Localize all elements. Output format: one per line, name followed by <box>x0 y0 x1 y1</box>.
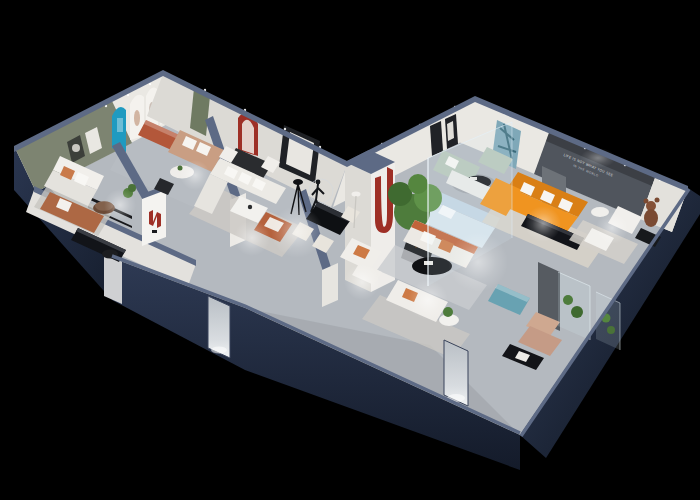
spot-pool-5 <box>234 220 270 256</box>
spot-pool-2 <box>448 232 508 292</box>
spot-pool-4 <box>525 206 561 242</box>
poster-circle-art <box>72 144 80 152</box>
spot-pool-8 <box>344 264 380 300</box>
double-frame-matte <box>447 121 454 141</box>
bear-body <box>644 209 658 227</box>
spot-pool-7 <box>596 212 628 244</box>
case-plant-2 <box>571 306 583 318</box>
logo-mark <box>152 230 157 233</box>
case-cactus-2 <box>607 326 615 334</box>
blue-arch-text-hint <box>117 118 123 132</box>
spot-pool-3 <box>408 280 448 320</box>
table-decor <box>248 205 252 209</box>
isometric-floorplan: LIFE IS NOT WHAT YOU SEE IN THE WORLD <box>0 0 700 500</box>
tree-foliage-4 <box>408 174 428 194</box>
case-plant-1 <box>563 295 573 305</box>
spot-pool-6 <box>180 160 210 190</box>
spot-pool-9 <box>104 189 136 221</box>
double-frame-art-1 <box>430 121 443 156</box>
red-arch-inner <box>242 120 254 154</box>
partition-3-endcap <box>322 263 338 307</box>
bear-ear-right <box>655 198 660 203</box>
potted-plant-leaf <box>128 184 136 192</box>
statue-head <box>316 180 321 185</box>
floor-lamp-shade <box>352 191 361 196</box>
showroom-render: LIFE IS NOT WHAT YOU SEE IN THE WORLD <box>0 0 700 500</box>
mirror-glow-1 <box>211 347 227 354</box>
arch-portrait-figure <box>134 110 140 126</box>
spot-pool-1 <box>271 206 323 258</box>
